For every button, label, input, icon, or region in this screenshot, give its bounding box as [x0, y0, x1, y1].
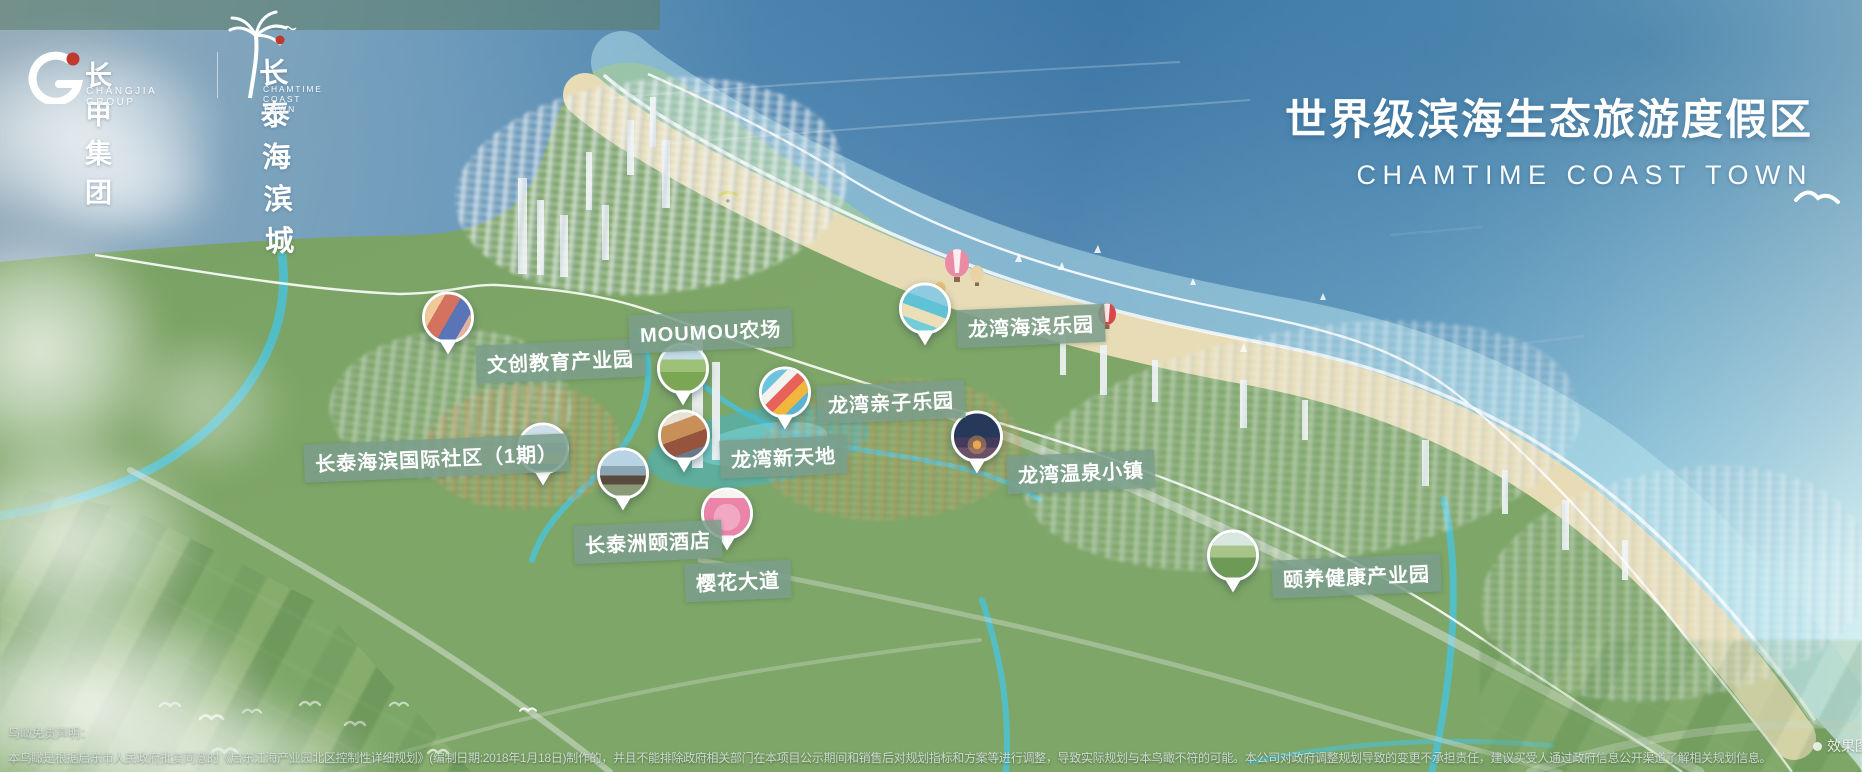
project-name-en: CHAMTIME COAST TOWN	[263, 84, 323, 114]
poi-label-seaside-park: 龙湾海滨乐园	[956, 304, 1106, 348]
pin-tail	[968, 459, 986, 474]
poi-label-sakura-avenue: 樱花大道	[684, 560, 792, 603]
poi-label-hotel: 长泰洲颐酒店	[573, 520, 723, 564]
pin-tail	[439, 340, 457, 355]
pin-tail	[674, 391, 692, 406]
poi-label-wenchuang: 文创教育产业园	[475, 338, 645, 383]
poi-label-moumou-farm: MOUMOU农场	[628, 308, 793, 353]
pin-tail	[1224, 578, 1242, 593]
poi-pin-seaside-park	[899, 283, 951, 346]
seniors-cycling-photo	[1210, 533, 1256, 579]
children-photo	[425, 295, 471, 341]
group-name-en: CHANGJIA GROUP	[86, 86, 157, 108]
poi-pin-family-park	[759, 367, 811, 430]
shopping-street-photo	[661, 413, 707, 459]
poi-pin-hotspring-town	[951, 411, 1003, 474]
render-watermark-text: 效果图	[1827, 736, 1862, 756]
headline-cn: 世界级滨海生态旅游度假区	[1285, 86, 1813, 147]
g-swoosh-icon	[23, 48, 83, 104]
disclaimer-body: 本鸟瞰是根据启东市人民政府批复同意的《启东江海产业园北区控制性详细规划》(编制日…	[8, 749, 1771, 766]
disclaimer: 鸟瞰免责声明： 本鸟瞰是根据启东市人民政府批复同意的《启东江海产业园北区控制性详…	[8, 724, 1771, 766]
render-watermark: 效果图	[1813, 736, 1862, 756]
poi-label-health-park: 颐养健康产业园	[1271, 553, 1441, 598]
headline-en: CHAMTIME COAST TOWN	[1285, 160, 1813, 191]
pin-tail	[776, 415, 794, 430]
pin-tail	[534, 471, 552, 486]
farm-field-photo	[660, 346, 706, 392]
poi-label-family-park: 龙湾亲子乐园	[816, 380, 966, 424]
pin-tail	[614, 496, 632, 511]
pin-tail	[916, 331, 934, 346]
disclaimer-title: 鸟瞰免责声明：	[8, 724, 1771, 741]
brand-divider	[217, 52, 218, 98]
poi-pin-xintiandi	[658, 410, 710, 473]
far-shore	[0, 0, 660, 30]
headline: 世界级滨海生态旅游度假区 CHAMTIME COAST TOWN	[1285, 86, 1813, 191]
hotel-photo	[600, 451, 646, 497]
poi-pin-health-park	[1207, 530, 1259, 593]
beach-lagoon-photo	[902, 286, 948, 332]
night-town-photo	[954, 414, 1000, 460]
dot-icon	[1813, 742, 1822, 751]
group-name-cn: 长甲集团	[85, 54, 115, 210]
poi-pin-wenchuang	[422, 292, 474, 355]
poi-label-xintiandi: 龙湾新天地	[719, 435, 848, 479]
poi-pin-hotel	[597, 448, 649, 511]
poi-label-hotspring-town: 龙湾温泉小镇	[1006, 450, 1156, 494]
water-park-photo	[762, 370, 808, 416]
pin-tail	[675, 458, 693, 473]
masterplan-poster: 长甲集团 CHANGJIA GROUP 长泰海滨城 CHAMTIME COAST…	[0, 0, 1862, 772]
